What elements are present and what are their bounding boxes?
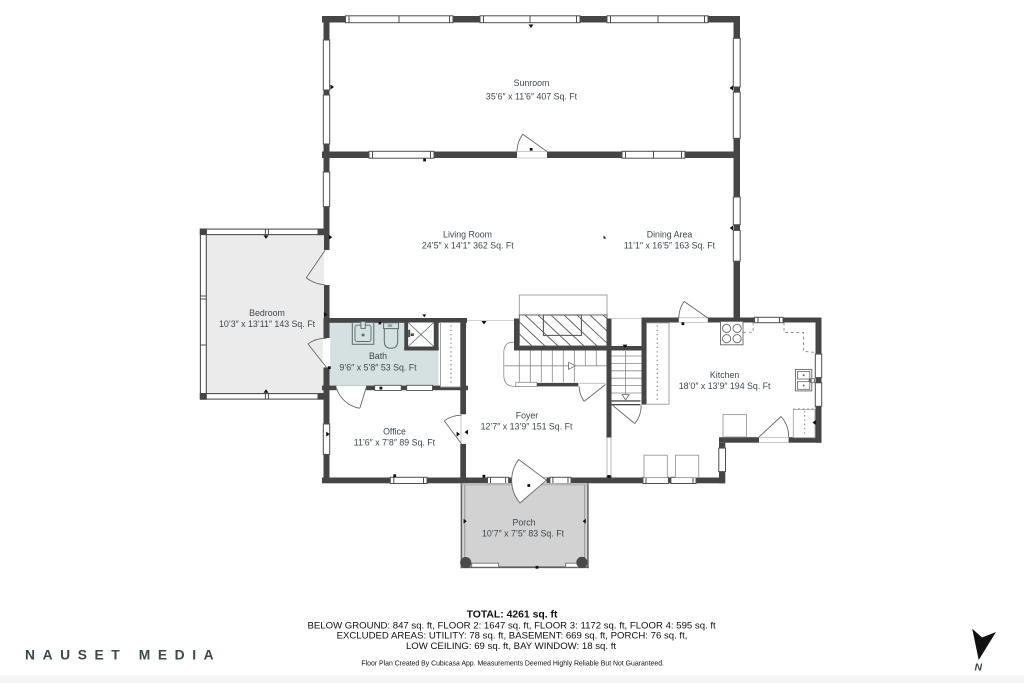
svg-text:Living Room: Living Room xyxy=(443,230,492,240)
svg-text:NAUSET MEDIA: NAUSET MEDIA xyxy=(25,648,221,663)
svg-text:EXCLUDED AREAS: UTILITY: 78 sq: EXCLUDED AREAS: UTILITY: 78 sq. ft, BASE… xyxy=(337,631,688,642)
svg-text:Floor Plan Created By Cubicasa: Floor Plan Created By Cubicasa App. Meas… xyxy=(361,661,664,668)
svg-text:Bedroom: Bedroom xyxy=(249,308,285,318)
svg-text:Bath: Bath xyxy=(369,351,387,361)
svg-text:11’1″ x 16’5″ 163 Sq. Ft: 11’1″ x 16’5″ 163 Sq. Ft xyxy=(624,241,716,251)
svg-text:9’6″ x 5’8″ 53 Sq. Ft: 9’6″ x 5’8″ 53 Sq. Ft xyxy=(339,363,417,373)
svg-text:Porch: Porch xyxy=(513,518,536,528)
svg-text:N: N xyxy=(975,661,983,673)
svg-text:TOTAL: 4261 sq. ft: TOTAL: 4261 sq. ft xyxy=(467,610,558,621)
svg-text:12’7″ x 13’9″ 151 Sq. Ft: 12’7″ x 13’9″ 151 Sq. Ft xyxy=(481,422,573,432)
svg-text:10’3″ x 13’11″ 143 Sq. Ft: 10’3″ x 13’11″ 143 Sq. Ft xyxy=(219,319,316,329)
svg-text:Kitchen: Kitchen xyxy=(710,370,739,380)
svg-text:10’7″ x 7’5″ 83 Sq. Ft: 10’7″ x 7’5″ 83 Sq. Ft xyxy=(482,529,565,539)
svg-text:24’5″ x 14’1″ 362 Sq. Ft: 24’5″ x 14’1″ 362 Sq. Ft xyxy=(422,241,514,251)
svg-text:35’6″ x 11’6″ 407 Sq. Ft: 35’6″ x 11’6″ 407 Sq. Ft xyxy=(486,92,578,102)
svg-text:Sunroom: Sunroom xyxy=(514,78,550,88)
svg-text:11’6″ x 7’8″ 89 Sq. Ft: 11’6″ x 7’8″ 89 Sq. Ft xyxy=(354,438,436,448)
svg-text:BELOW GROUND: 847 sq. ft, FLOO: BELOW GROUND: 847 sq. ft, FLOOR 2: 1647 … xyxy=(307,620,716,631)
svg-text:Foyer: Foyer xyxy=(516,411,539,421)
svg-text:Office: Office xyxy=(383,427,406,437)
svg-text:Dining Area: Dining Area xyxy=(647,230,693,240)
svg-text:18’0″ x 13’9″ 194 Sq. Ft: 18’0″ x 13’9″ 194 Sq. Ft xyxy=(679,381,771,391)
svg-text:LOW CEILING: 69 sq. ft, BAY WI: LOW CEILING: 69 sq. ft, BAY WINDOW: 18 s… xyxy=(406,641,616,652)
